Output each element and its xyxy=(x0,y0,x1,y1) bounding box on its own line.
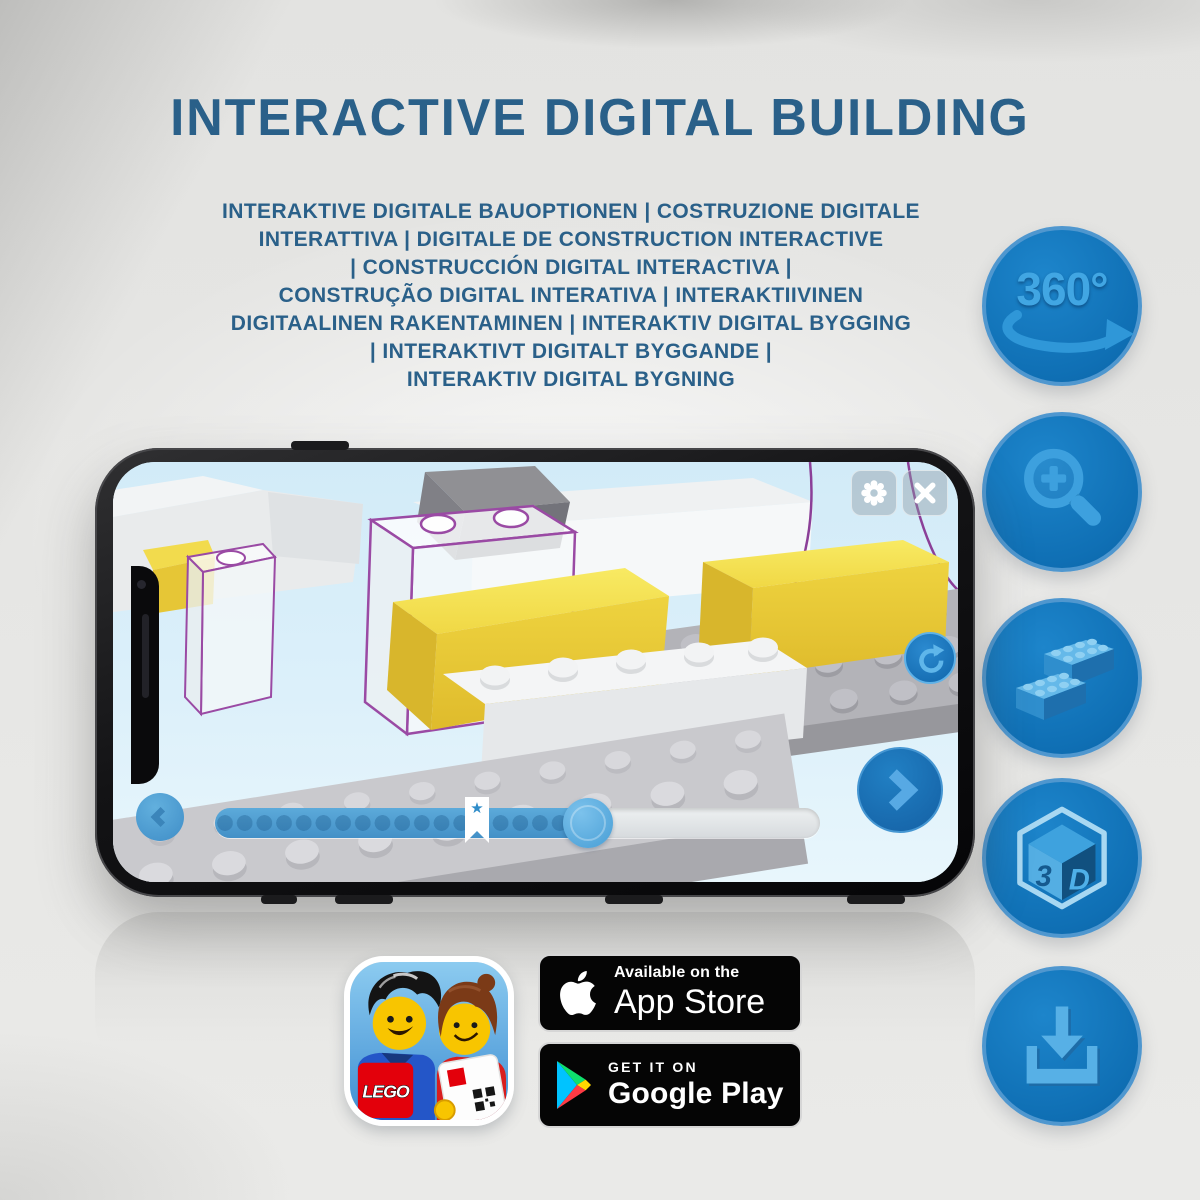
gear-icon xyxy=(859,478,889,508)
brick-lower xyxy=(1016,673,1086,720)
lego-logo-text: LEGO xyxy=(362,1081,410,1101)
lego-minifigures-art: LEGO xyxy=(350,962,508,1120)
feature-badge-zoom xyxy=(982,412,1142,572)
subtitle-line: DIGITAALINEN RAKENTAMINEN | INTERAKTIV D… xyxy=(0,310,1142,338)
subtitle-block: INTERAKTIVE DIGITALE BAUOPTIONEN | COSTR… xyxy=(0,198,1142,394)
progress-fill xyxy=(215,808,590,838)
phone-screen: ★ xyxy=(113,462,958,882)
rotate-icon xyxy=(913,641,947,675)
subtitle-line: CONSTRUÇÃO DIGITAL INTERATIVA | INTERAKT… xyxy=(0,282,1142,310)
chevron-left-icon xyxy=(143,800,177,834)
rotate-view-button[interactable] xyxy=(904,632,956,684)
feature-badge-360: 360° xyxy=(982,226,1142,386)
previous-step-button[interactable] xyxy=(136,793,184,841)
phone-side-button xyxy=(335,895,393,904)
subtitle-line: INTERAKTIV DIGITAL BYGNING xyxy=(0,366,1142,394)
settings-button[interactable] xyxy=(851,470,897,516)
lego-app-icon[interactable]: LEGO xyxy=(344,956,514,1126)
lego-bricks-icon xyxy=(1006,626,1118,730)
chevron-right-icon xyxy=(869,759,931,821)
360-arrow-icon xyxy=(997,310,1135,358)
phone-side-button xyxy=(261,895,297,904)
phone-side-button xyxy=(847,895,905,904)
google-play-name: Google Play xyxy=(608,1077,784,1111)
phone-side-button xyxy=(605,895,663,904)
subtitle-line: INTERATTIVA | DIGITALE DE CONSTRUCTION I… xyxy=(0,226,1142,254)
apple-icon xyxy=(556,968,600,1018)
google-play-tagline: GET IT ON xyxy=(608,1059,784,1075)
subtitle-line: | CONSTRUCCIÓN DIGITAL INTERACTIVA | xyxy=(0,254,1142,282)
step-progress-bar[interactable] xyxy=(215,808,820,838)
app-store-tagline: Available on the xyxy=(614,964,765,982)
phone-mockup: ★ xyxy=(95,448,975,897)
feature-badge-download xyxy=(982,966,1142,1126)
google-play-icon xyxy=(556,1061,594,1109)
star-icon: ★ xyxy=(470,800,483,817)
progress-handle[interactable] xyxy=(563,798,613,848)
page-title: INTERACTIVE DIGITAL BUILDING xyxy=(26,88,1174,148)
close-icon xyxy=(911,479,939,507)
3d-cube-icon: 3 D xyxy=(1008,804,1116,912)
app-store-name: App Store xyxy=(614,983,765,1022)
subtitle-line: | INTERAKTIVT DIGITALT BYGGANDE | xyxy=(0,338,1142,366)
phone-side-button xyxy=(291,441,349,450)
feature-badge-3d: 3 D xyxy=(982,778,1142,938)
360-label: 360° xyxy=(986,262,1138,316)
cube-face-3: 3 xyxy=(1036,861,1052,893)
subtitle-line: INTERAKTIVE DIGITALE BAUOPTIONEN | COSTR… xyxy=(0,198,1142,226)
earpiece-speaker xyxy=(142,614,149,698)
front-camera xyxy=(137,580,146,589)
handle-ring xyxy=(570,805,606,841)
google-play-badge[interactable]: GET IT ON Google Play xyxy=(538,1042,802,1128)
cube-face-d: D xyxy=(1069,864,1090,896)
feature-badge-bricks xyxy=(982,598,1142,758)
download-icon xyxy=(1010,994,1114,1098)
close-button[interactable] xyxy=(902,470,948,516)
app-store-badge[interactable]: Available on the App Store xyxy=(538,954,802,1032)
360-rotation-icon: 360° xyxy=(986,230,1138,382)
next-step-button[interactable] xyxy=(857,747,943,833)
phone-reflection xyxy=(95,912,975,1082)
zoom-in-icon xyxy=(1010,440,1114,544)
